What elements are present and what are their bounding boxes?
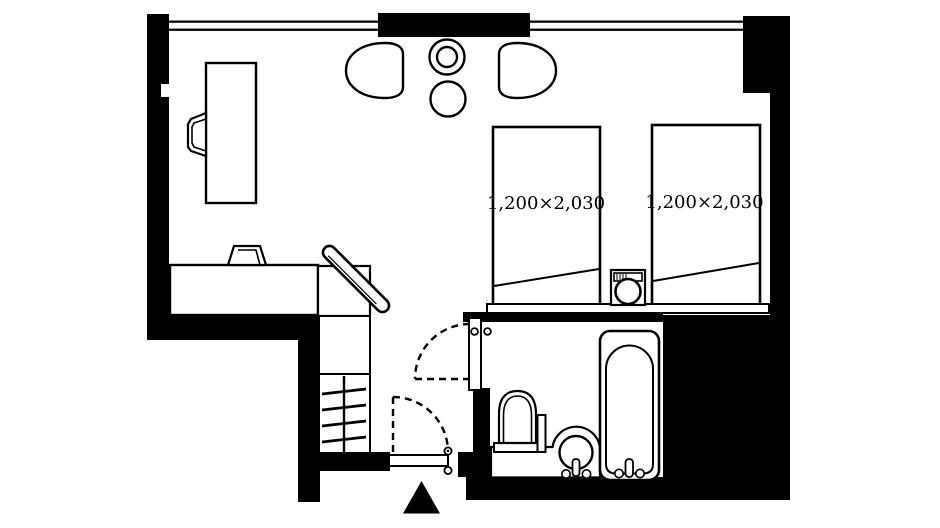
entrance-arrow-icon — [403, 481, 440, 514]
stool — [228, 246, 266, 265]
wall-left — [147, 14, 169, 340]
bathtub-handle-left — [615, 469, 623, 477]
wall-closet-west — [298, 327, 320, 502]
closet-shelf — [318, 316, 370, 374]
casework — [170, 265, 370, 455]
beds — [487, 125, 769, 313]
toilet-base — [494, 443, 541, 452]
sitting-area — [346, 40, 556, 117]
bathtub-faucet — [626, 459, 634, 477]
lamp-table-inner — [437, 47, 457, 67]
bathroom-door-swing-arc — [415, 324, 470, 379]
sink-handle-right — [582, 470, 590, 478]
lounge-chair-right — [499, 43, 556, 98]
sink-handle-left — [562, 470, 570, 478]
desk-area — [188, 63, 266, 265]
floor-plan: 1,200×2,030 1,200×2,030 — [0, 0, 940, 528]
entry-door-leaf — [389, 455, 448, 466]
toilet — [499, 391, 536, 443]
wall-notch — [161, 84, 170, 97]
round-table — [431, 82, 466, 117]
wall-corner-top-right — [743, 16, 790, 93]
bathroom-door-hinge — [471, 328, 478, 335]
counter — [170, 265, 318, 315]
bed-1-label: 1,200×2,030 — [487, 193, 605, 214]
desk — [206, 63, 256, 203]
floor-plan-stage: 1,200×2,030 1,200×2,030 — [0, 0, 940, 528]
toilet-tank-bar — [538, 415, 546, 452]
bathtub — [600, 331, 659, 480]
entry-door-swing-arc — [393, 397, 448, 452]
sink-faucet — [573, 459, 580, 476]
wall-closet-south — [310, 452, 390, 471]
entry-door — [389, 397, 452, 474]
wall-service-block — [663, 315, 790, 500]
wall-right — [770, 90, 790, 316]
wall-bath-west-lower — [473, 388, 490, 477]
wall-top-column — [378, 13, 530, 37]
wall-west-bar — [147, 316, 320, 340]
bathroom-door-hinge — [484, 328, 491, 335]
nightstand-lamp — [616, 279, 641, 304]
bathtub-handle-right — [636, 469, 644, 477]
entry-door-hinge — [444, 467, 451, 474]
bathroom — [491, 331, 659, 480]
lounge-chair-left — [346, 43, 403, 98]
bathroom-door — [415, 318, 491, 390]
bed-2-label: 1,200×2,030 — [645, 192, 763, 213]
